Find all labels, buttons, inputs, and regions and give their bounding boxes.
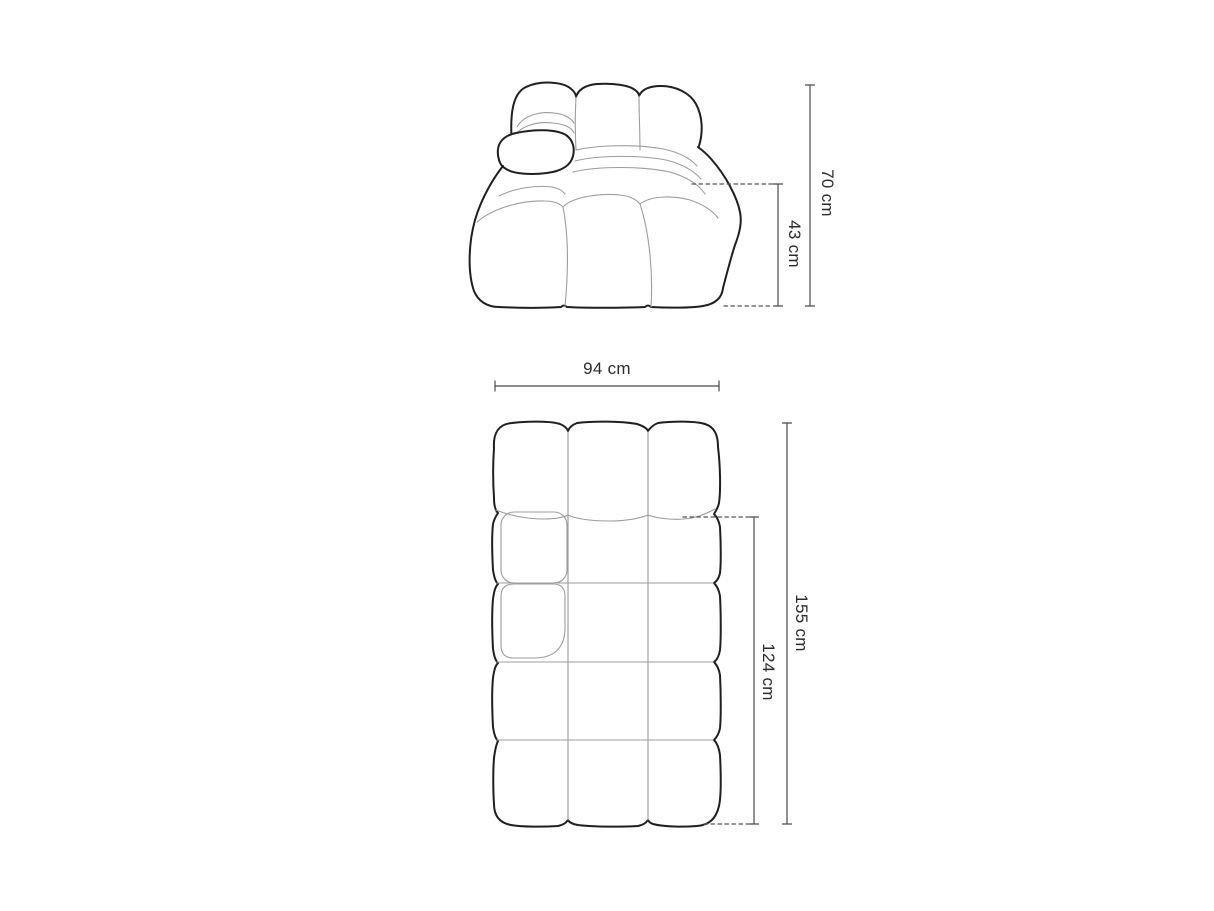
front-view-drawing	[470, 83, 815, 308]
top-armrest-module-2	[501, 584, 565, 658]
top-extension-dashes	[683, 517, 749, 824]
sofa-line-art	[0, 0, 1214, 911]
front-seat-seam	[477, 195, 718, 223]
front-vertical-seams	[563, 204, 652, 307]
top-body-outline	[492, 422, 721, 827]
front-armrest-pillow	[498, 130, 574, 174]
top-width-label: 94 cm	[583, 359, 631, 379]
top-seat-depth-label: 124 cm	[758, 643, 778, 701]
top-armrest-module-1	[501, 512, 567, 583]
top-backrest-arcs	[496, 509, 715, 521]
front-total-height-label: 70 cm	[817, 169, 837, 217]
top-width-dimension-line	[495, 381, 719, 391]
front-seat-height-label: 43 cm	[784, 220, 804, 268]
front-height-dimension-line	[806, 85, 815, 306]
top-total-depth-label: 155 cm	[791, 594, 811, 652]
top-vertical-seams	[568, 432, 648, 820]
dimension-diagram: 70 cm 43 cm 94 cm 155 cm 124 cm	[0, 0, 1214, 911]
front-extension-dashes	[692, 184, 773, 306]
front-seat-height-dimension-line	[774, 184, 783, 306]
top-row-seams	[497, 583, 713, 740]
top-view-drawing	[492, 381, 791, 827]
front-backrest-seams	[575, 96, 640, 150]
